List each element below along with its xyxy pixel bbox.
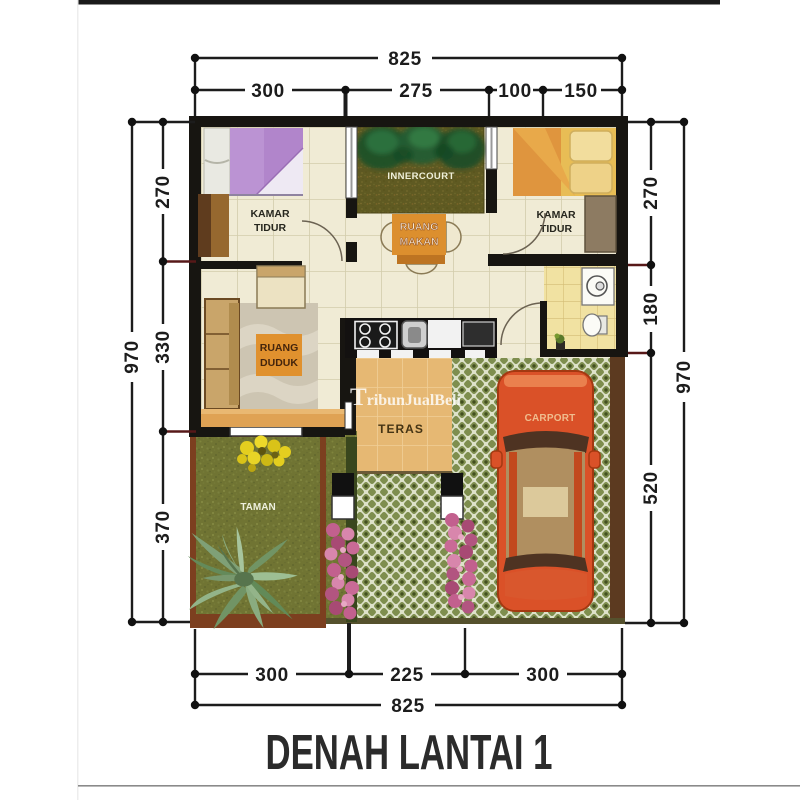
svg-text:DUDUK: DUDUK bbox=[260, 357, 298, 369]
svg-text:270: 270 bbox=[153, 175, 174, 209]
svg-text:825: 825 bbox=[391, 696, 425, 717]
svg-text:CARPORT: CARPORT bbox=[525, 413, 576, 424]
svg-text:KAMAR: KAMAR bbox=[536, 209, 575, 221]
svg-text:TIDUR: TIDUR bbox=[254, 222, 286, 234]
svg-text:INNERCOURT: INNERCOURT bbox=[387, 171, 454, 182]
svg-text:300: 300 bbox=[251, 81, 285, 102]
svg-text:370: 370 bbox=[153, 510, 174, 544]
svg-text:TERAS: TERAS bbox=[378, 422, 424, 436]
svg-text:100: 100 bbox=[498, 81, 532, 102]
svg-text:300: 300 bbox=[526, 665, 560, 686]
svg-text:970: 970 bbox=[122, 340, 143, 374]
svg-text:300: 300 bbox=[255, 665, 289, 686]
svg-text:275: 275 bbox=[399, 81, 433, 102]
svg-text:TIDUR: TIDUR bbox=[540, 223, 572, 235]
svg-text:RUANG: RUANG bbox=[260, 342, 299, 354]
svg-text:RUANG: RUANG bbox=[400, 221, 439, 233]
svg-text:180: 180 bbox=[641, 292, 662, 326]
svg-text:970: 970 bbox=[674, 360, 695, 394]
svg-text:270: 270 bbox=[641, 176, 662, 210]
svg-text:TAMAN: TAMAN bbox=[240, 502, 275, 513]
svg-text:DENAH LANTAI 1: DENAH LANTAI 1 bbox=[266, 726, 553, 780]
svg-text:150: 150 bbox=[564, 81, 598, 102]
svg-text:KAMAR: KAMAR bbox=[250, 208, 289, 220]
svg-text:MAKAN: MAKAN bbox=[399, 236, 438, 248]
svg-text:825: 825 bbox=[388, 49, 422, 70]
svg-text:225: 225 bbox=[390, 665, 424, 686]
svg-text:520: 520 bbox=[641, 471, 662, 505]
svg-text:330: 330 bbox=[153, 330, 174, 364]
